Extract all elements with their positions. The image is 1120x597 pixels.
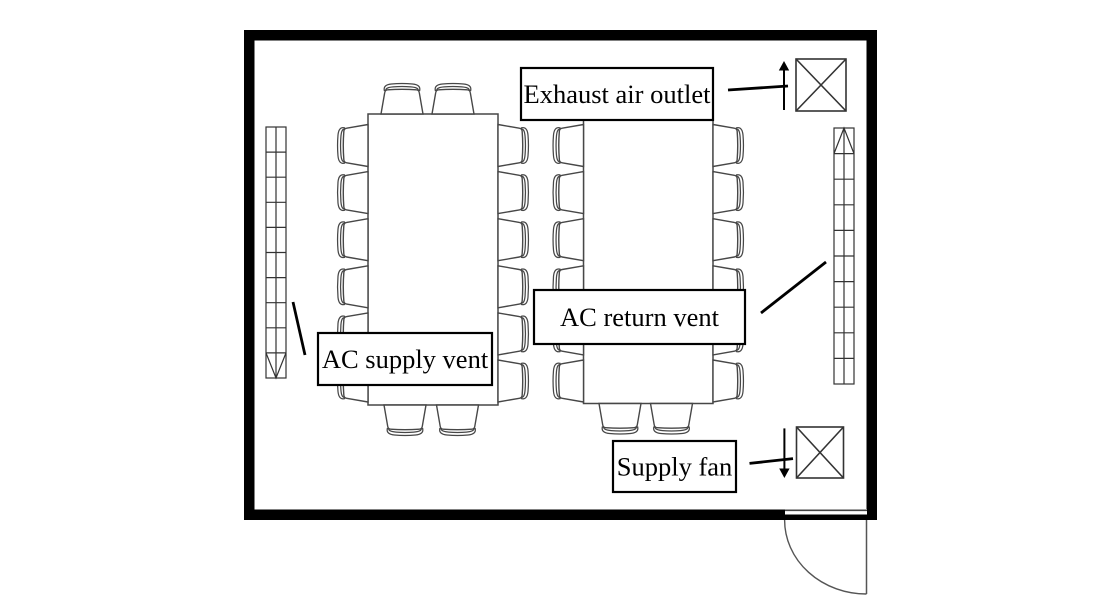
- svg-text:Exhaust air outlet: Exhaust air outlet: [524, 79, 712, 109]
- svg-text:AC supply vent: AC supply vent: [322, 344, 489, 374]
- svg-text:AC return vent: AC return vent: [560, 302, 720, 332]
- svg-text:Supply fan: Supply fan: [617, 452, 733, 482]
